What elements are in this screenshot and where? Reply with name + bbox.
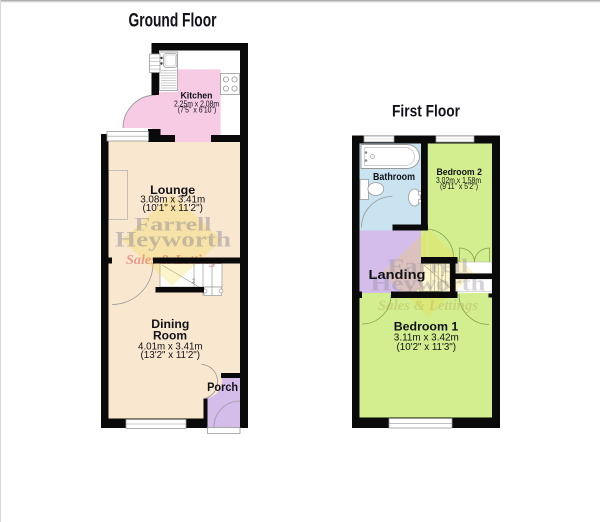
svg-text:(9'11" x 5'2"): (9'11" x 5'2") xyxy=(440,182,478,191)
svg-text:Landing: Landing xyxy=(369,267,426,282)
svg-text:Bathroom: Bathroom xyxy=(373,171,415,183)
svg-text:First Floor: First Floor xyxy=(392,103,460,121)
svg-text:Dining: Dining xyxy=(151,319,189,331)
svg-text:Heyworth: Heyworth xyxy=(115,227,231,252)
svg-text:(13'2" x 11'2"): (13'2" x 11'2") xyxy=(141,350,201,361)
svg-text:(10'1" x 11'2"): (10'1" x 11'2") xyxy=(142,203,203,214)
svg-text:Sales & Lettings: Sales & Lettings xyxy=(378,298,478,314)
svg-text:Ground Floor: Ground Floor xyxy=(129,11,217,32)
svg-text:Porch: Porch xyxy=(207,382,238,394)
svg-text:Bedroom 1: Bedroom 1 xyxy=(394,320,459,334)
svg-text:(7'5" x 6'10"): (7'5" x 6'10") xyxy=(178,106,217,115)
svg-text:(10'2" x 11'3"): (10'2" x 11'3") xyxy=(397,342,457,353)
